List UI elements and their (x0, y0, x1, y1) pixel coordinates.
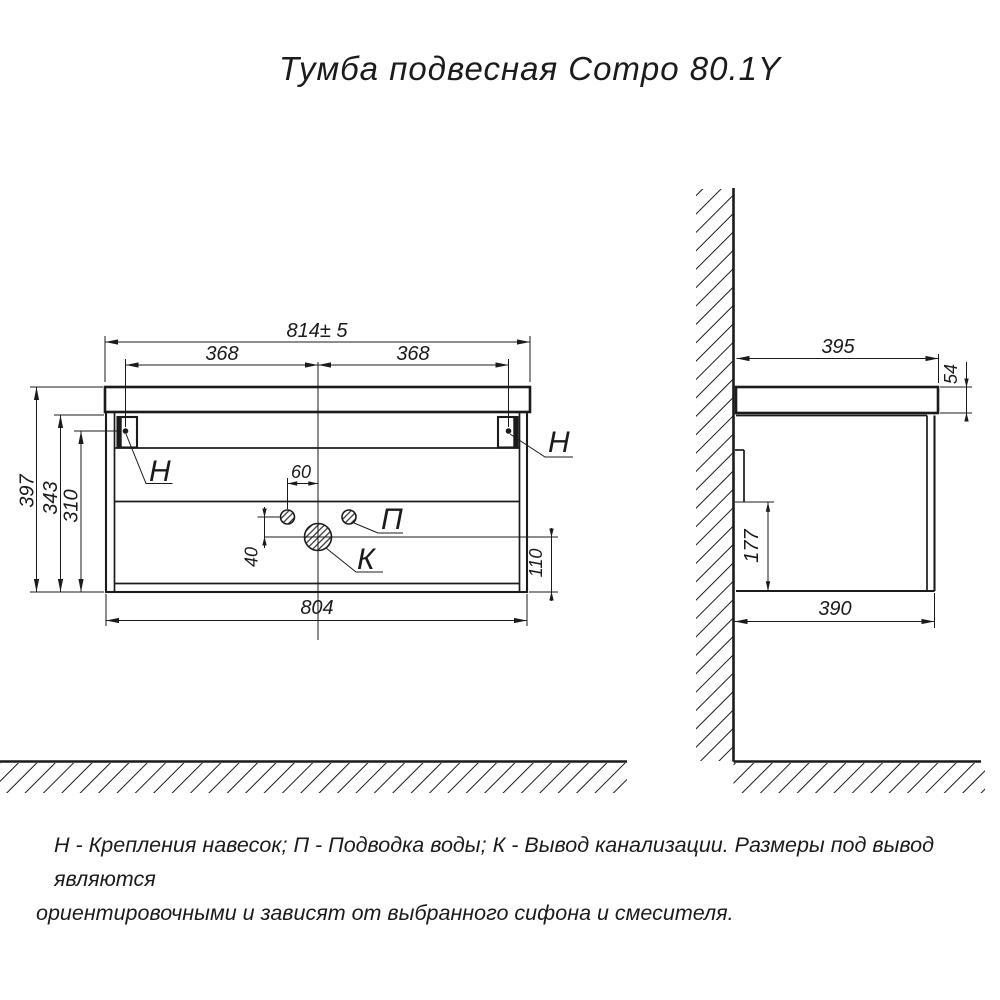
label-drain: К (357, 543, 377, 576)
dim-height-bracket: 310 (61, 489, 83, 522)
side-dimensions: 395 54 177 390 (735, 336, 973, 628)
dim-bracket-right-offset: 368 (396, 343, 429, 365)
dim-height-body: 343 (40, 481, 62, 514)
dim-depth-top: 395 (821, 336, 855, 358)
label-water: П (381, 503, 403, 536)
front-dimensions: 814± 5 368 368 397 343 310 60 (17, 320, 559, 626)
label-bracket-left: H (149, 455, 171, 488)
label-bracket-right: H (548, 426, 570, 459)
dim-recess-height: 177 (741, 528, 763, 562)
dim-width-body: 804 (300, 597, 333, 619)
dim-height-total: 397 (17, 473, 39, 507)
mounting-bracket-right (498, 417, 518, 448)
dim-drain-offset: 40 (242, 547, 262, 567)
floor-section (0, 762, 985, 794)
water-inlet-hole-left (281, 510, 295, 524)
dim-drain-height: 110 (526, 549, 546, 578)
drawing-page: Тумба подвесная Compo 80.1Y (0, 0, 1000, 1000)
wall-section (696, 188, 734, 762)
dim-water-offset: 60 (291, 462, 311, 482)
water-inlet-hole-right (342, 510, 356, 524)
mounting-bracket-left (118, 417, 138, 448)
dim-width-top: 814± 5 (286, 320, 348, 342)
side-view (735, 387, 938, 591)
dim-bracket-left-offset: 368 (205, 343, 238, 365)
drain-outlet-hole (305, 524, 332, 551)
footnote: Н - Крепления навесок; П - Подводка воды… (36, 828, 951, 930)
dim-top-thickness: 54 (941, 364, 961, 384)
dim-depth-body: 390 (818, 598, 851, 620)
footnote-line-2: ориентировочными и зависят от выбранного… (36, 896, 951, 930)
footnote-line-1: Н - Крепления навесок; П - Подводка воды… (36, 828, 951, 896)
